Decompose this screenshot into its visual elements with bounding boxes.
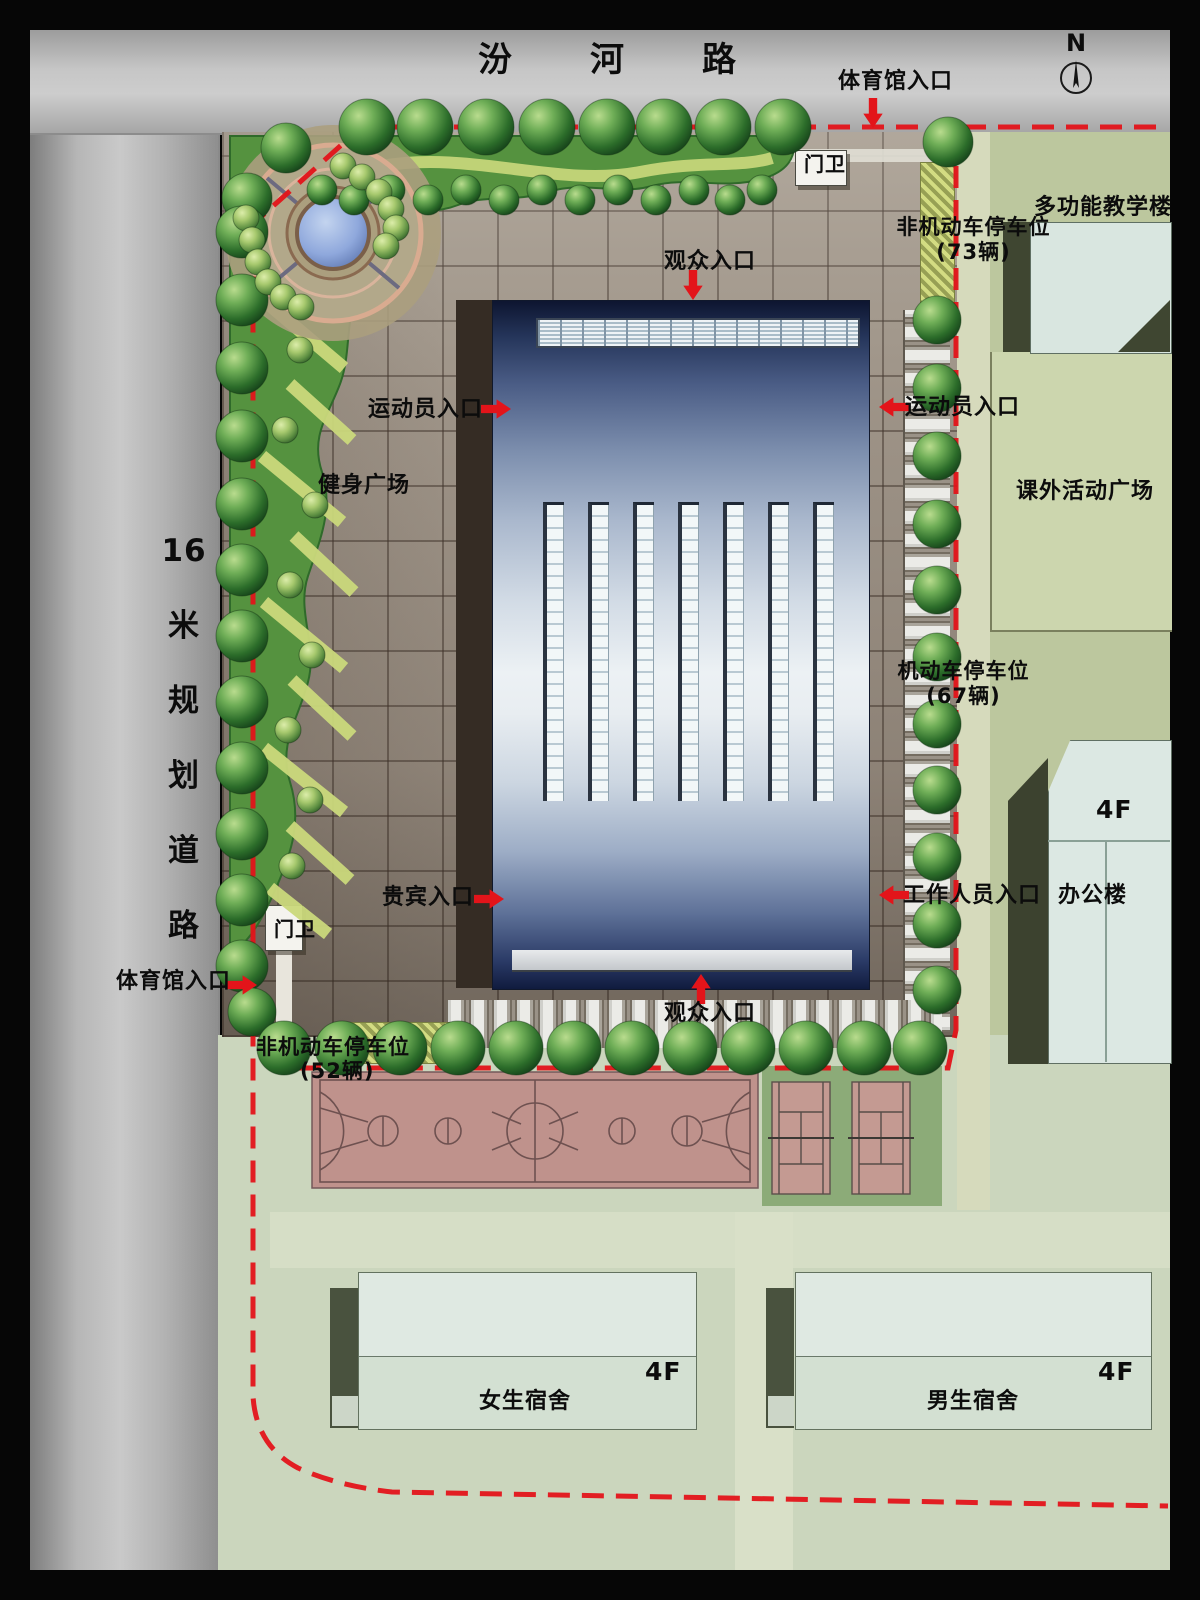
office-roof-line xyxy=(1048,840,1170,842)
bike-parking-bottom-label: 非机动车停车位 xyxy=(256,1036,410,1059)
staff-entrance-label: 工作人员入口 xyxy=(903,884,1041,908)
athlete-right-label: 运动员入口 xyxy=(905,396,1020,420)
teaching-building-label: 多功能教学楼 xyxy=(1034,196,1172,220)
athlete-left-label: 运动员入口 xyxy=(368,398,483,422)
car-parking-label: 机动车停车位 xyxy=(876,660,1051,683)
fitness-plaza-label: 健身广场 xyxy=(318,474,410,498)
road-name-top: 汾河路 xyxy=(478,42,814,79)
boys-dorm-entry xyxy=(768,1396,794,1426)
gym-roof-grille xyxy=(536,318,860,348)
spectator-top-label: 观众入口 xyxy=(664,250,756,274)
teaching-building-notch xyxy=(1118,300,1170,352)
north-label: N xyxy=(1066,30,1087,56)
gym-skylight xyxy=(813,502,834,801)
girls-dorm-label: 女生宿舍 xyxy=(430,1390,620,1414)
activity-plaza-label: 课外活动广场 xyxy=(1000,480,1170,504)
vip-entrance-label: 贵宾入口 xyxy=(382,886,474,910)
gym-skylight xyxy=(543,502,564,801)
boys-dorm-roof-band xyxy=(796,1273,1151,1357)
gym-skylight xyxy=(588,502,609,801)
guard-top-label: 门卫 xyxy=(804,153,846,175)
girls-dorm-floors-label: 4F xyxy=(645,1358,681,1386)
bike-parking-bottom-count: (52辆) xyxy=(300,1060,374,1083)
site-plan: N 汾河路 16 米 规 划 道 路 体育馆入口 门卫 非机动车停车位 (73辆… xyxy=(0,0,1200,1600)
gym-skylight xyxy=(768,502,789,801)
gym-entrance-canopy xyxy=(512,950,852,972)
girls-dorm-entry xyxy=(332,1396,358,1426)
spectator-bottom-label: 观众入口 xyxy=(664,1002,756,1026)
gym-entrance-top-label: 体育馆入口 xyxy=(838,70,953,94)
office-floors-label: 4F xyxy=(1096,796,1132,824)
campus-path-horizontal xyxy=(270,1212,1170,1268)
bike-parking-right-count: (73辆) xyxy=(876,241,1071,264)
office-building-label: 办公楼 xyxy=(1058,884,1127,908)
boys-dorm-floors-label: 4F xyxy=(1098,1358,1134,1386)
office-roof-divider xyxy=(1105,840,1107,1062)
walkway-top xyxy=(598,149,933,162)
office-building-shadow xyxy=(1008,758,1048,1064)
north-compass-icon xyxy=(1054,54,1098,98)
tennis-court-surround xyxy=(762,1066,942,1206)
road-name-left: 16 米 规 划 道 路 xyxy=(162,534,206,944)
walkway-left xyxy=(276,949,292,1031)
girls-dorm-roof-band xyxy=(359,1273,696,1357)
car-parking-count: (67辆) xyxy=(876,685,1051,708)
gym-entrance-left-label: 体育馆入口 xyxy=(116,970,231,994)
gym-skylight xyxy=(678,502,699,801)
boys-dorm-label: 男生宿舍 xyxy=(878,1390,1068,1414)
gym-skylight xyxy=(633,502,654,801)
guard-left-label: 门卫 xyxy=(274,918,316,940)
gym-skylight xyxy=(723,502,744,801)
